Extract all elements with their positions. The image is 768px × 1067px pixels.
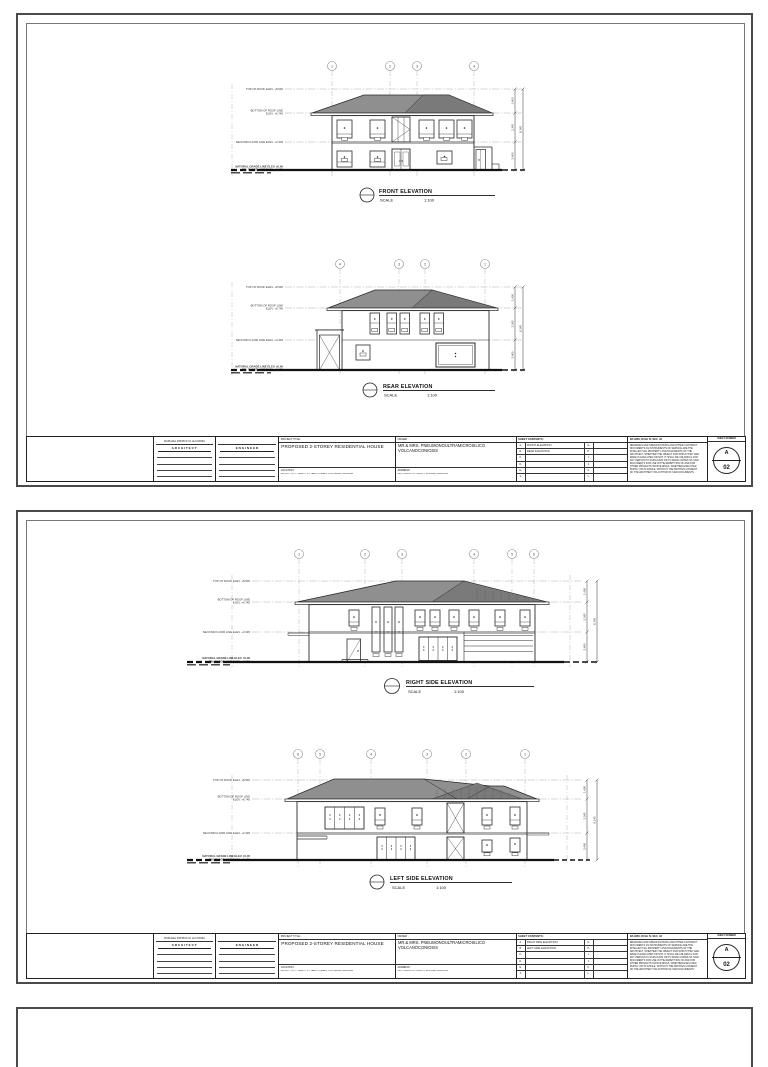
- owner-name: MR.& MRS. PNEUMONOULTRAMICROSILICO VOLCA…: [396, 940, 516, 951]
- address-value: 140 TUAZON ST. IGULOT, BOCAUE, BULACAN: [396, 970, 516, 974]
- contents-entry: LEFT SIDE ELEVATION: [526, 946, 585, 951]
- dimension-labels: 1,400 3,345 3,400 8,145: [511, 97, 523, 159]
- dim-label: 8,145: [593, 618, 597, 625]
- level-label: ELEV. +6.745: [266, 307, 284, 311]
- level-label: ELEV. +6.745: [233, 798, 251, 802]
- view-title: RIGHT SIDE ELEVATION SCALE 1:100: [385, 679, 535, 694]
- sheet-series: A: [714, 450, 739, 456]
- porch-slab: [288, 633, 309, 635]
- grid-bubble-label: 4: [339, 262, 341, 266]
- signature-line: [157, 967, 213, 968]
- engineer-name: [218, 937, 276, 942]
- grid-bubble-label: 2: [389, 64, 391, 68]
- revision-block: [27, 437, 154, 481]
- level-label: TOP OF ROOF ELEV. +8.545: [246, 285, 283, 289]
- dim-label: 3,400: [511, 351, 515, 358]
- dim-label: 8,145: [593, 816, 597, 823]
- sheet-number-label: SHEET NUMBER: [708, 934, 745, 939]
- grid-bubble-label: 1: [331, 64, 333, 68]
- contents-letter: L.: [585, 971, 594, 977]
- level-label: SECOND FLOOR LINE ELEV. +3.345: [236, 140, 284, 144]
- grid-bubble-labels: 4 3 2 1: [339, 262, 486, 266]
- title-block: RAPHAEL PATRICK M. ALCORIZA ARCHITECT EN…: [26, 436, 746, 482]
- grid-bubble-label: 4: [473, 64, 475, 68]
- engineer-name: [218, 440, 276, 445]
- contents-entry: [594, 455, 628, 460]
- dimension-labels: 1,400 3,345 3,400 8,145: [583, 588, 597, 651]
- sheet-series: A: [714, 947, 739, 953]
- contents-entry: [594, 959, 628, 964]
- sheet-number-circle: A 02: [713, 944, 740, 971]
- contents-letter: C.: [517, 952, 526, 957]
- engineer-label: ENGINEER: [220, 446, 274, 452]
- grid-bubble-label: 3: [416, 64, 418, 68]
- signature-line: [157, 476, 213, 477]
- house-front: [311, 95, 499, 170]
- grid-bubble-label: 1: [298, 552, 300, 556]
- dim-label: 3,400: [583, 643, 587, 650]
- location-value: BLOCK 7 LOT 7 EARTH ST. NEPO HOMES, STA.…: [279, 970, 395, 974]
- level-label: ELEV. +6.745: [266, 112, 284, 116]
- grid-bubble-label: 3: [401, 552, 403, 556]
- notes-block: RA 9266, RULE IV, SEC. 33 DRAWINGS AND S…: [628, 437, 708, 481]
- contents-letter: L.: [585, 474, 594, 480]
- notes-body: DRAWINGS AND SPECIFICATIONS AND OTHER CO…: [628, 940, 707, 971]
- level-label: TOP OF ROOF ELEV. +8.545: [213, 579, 250, 583]
- architect-name: RAPHAEL PATRICK M. ALCORIZA: [156, 937, 214, 942]
- signature-line: [219, 973, 275, 974]
- sheet-number-divider: [712, 460, 741, 461]
- address-value: 140 TUAZON ST. IGULOT, BOCAUE, BULACAN: [396, 473, 516, 477]
- contents-letter: B.: [517, 946, 526, 951]
- address-block: ADDRESS : 140 TUAZON ST. IGULOT, BOCAUE,…: [396, 467, 516, 481]
- rear-elevation-drawing: 4 3 2 1 TOP OF ROOF ELEV. +8.545 BOTTOM …: [227, 255, 557, 407]
- engineer-label: ENGINEER: [220, 943, 274, 949]
- grid-bubbles: [328, 62, 479, 71]
- architect-label: ARCHITECT: [158, 446, 212, 452]
- project-title: PROPOSED 2-STOREY RESIDENTIAL HOUSE: [279, 940, 395, 947]
- view-title-label: REAR ELEVATION: [383, 384, 433, 390]
- signature-line: [157, 954, 213, 955]
- notes-block: RA 9266, RULE IV, SEC. 33 DRAWINGS AND S…: [628, 934, 708, 978]
- architect-label: ARCHITECT: [158, 943, 212, 949]
- project-block: PROJECT TITLE : PROPOSED 2-STOREY RESIDE…: [279, 437, 396, 481]
- level-label: ELEV. +6.745: [233, 601, 251, 605]
- grid-bubble-labels: 1 2 3 4 5 6: [298, 552, 535, 556]
- contents-entry: [594, 965, 628, 970]
- dimension-labels: 1,400 3,345 3,400 8,145: [583, 786, 597, 850]
- signature-line: [157, 464, 213, 465]
- sheet-contents-block: SHEET CONTENTS : A. RIGHT SIDE ELEVATION…: [517, 934, 629, 978]
- view-scale-label: SCALE: [392, 885, 405, 890]
- engineer-block: ENGINEER: [216, 437, 279, 481]
- grid-bubble-label: 3: [398, 262, 400, 266]
- drawing-sheet-2: 1 2 3 4 5 6 TOP OF ROOF ELEV. +8.545 BOT…: [16, 510, 753, 984]
- dim-label: 3,345: [583, 613, 587, 620]
- sheet-number-block: SHEET NUMBER A 02: [708, 934, 745, 978]
- signature-line: [157, 973, 213, 974]
- sheet-number-label: SHEET NUMBER: [708, 437, 745, 442]
- contents-entry: RIGHT SIDE ELEVATION: [526, 940, 585, 945]
- contents-entry: [594, 940, 628, 945]
- house-right-side: [288, 581, 549, 662]
- view-scale-label: SCALE: [380, 198, 393, 203]
- view-title-label: LEFT SIDE ELEVATION: [390, 876, 453, 882]
- contents-letter: J.: [585, 959, 594, 964]
- contents-entry: FRONT ELEVATION: [526, 443, 585, 448]
- signature-line: [219, 470, 275, 471]
- contents-letter: H.: [585, 946, 594, 951]
- contents-letter: D.: [517, 959, 526, 964]
- view-title-label: FRONT ELEVATION: [379, 189, 432, 195]
- contents-letter: H.: [585, 449, 594, 454]
- grid-bubble-label: 2: [424, 262, 426, 266]
- grid-bubbles: [336, 260, 490, 269]
- contents-entry: [526, 959, 585, 964]
- contents-entry: [594, 462, 628, 467]
- contents-entry: [526, 468, 585, 473]
- contents-letter: J.: [585, 462, 594, 467]
- revision-block: [27, 934, 154, 978]
- view-title: LEFT SIDE ELEVATION SCALE 1:100: [370, 875, 512, 890]
- level-label: SECOND FLOOR LINE ELEV. +3.345: [236, 338, 284, 342]
- owner-block: OWNER : MR.& MRS. PNEUMONOULTRAMICROSILI…: [396, 934, 517, 978]
- contents-entry: [594, 443, 628, 448]
- contents-letter: A.: [517, 940, 526, 945]
- contents-row: F. L.: [517, 474, 628, 480]
- address-block: ADDRESS : 140 TUAZON ST. IGULOT, BOCAUE,…: [396, 964, 516, 978]
- house-left-side: [285, 779, 549, 860]
- level-annotations: TOP OF ROOF ELEV. +8.545 BOTTOM OF ROOF …: [235, 285, 283, 372]
- grid-bubble-label: 1: [484, 262, 486, 266]
- front-elevation-drawing: 1 2 3 4 TOP OF ROOF ELEV. +8.545 BOTTOM …: [227, 58, 557, 208]
- contents-letter: I.: [585, 952, 594, 957]
- dim-label: 3,345: [583, 812, 587, 819]
- signature-line: [219, 961, 275, 962]
- contents-letter: A.: [517, 443, 526, 448]
- contents-entry: [526, 474, 585, 480]
- dim-label: 3,400: [511, 152, 515, 159]
- contents-letter: K.: [585, 965, 594, 970]
- contents-letter: I.: [585, 455, 594, 460]
- grid-bubble-label: 1: [524, 752, 526, 756]
- grid-bubble-label: 4: [370, 752, 372, 756]
- rear-annex: [315, 330, 344, 370]
- grid-bubble-label: 6: [533, 552, 535, 556]
- side-annex: [474, 147, 499, 170]
- contents-row: F. L.: [517, 971, 628, 977]
- contents-letter: C.: [517, 455, 526, 460]
- level-label: TOP OF ROOF ELEV. +8.545: [246, 87, 283, 91]
- project-block: PROJECT TITLE : PROPOSED 2-STOREY RESIDE…: [279, 934, 396, 978]
- contents-entry: [526, 455, 585, 460]
- contents-entry: REAR ELEVATION: [526, 449, 585, 454]
- contents-letter: K.: [585, 468, 594, 473]
- view-scale-label: SCALE: [384, 393, 397, 398]
- signature-line: [157, 961, 213, 962]
- signature-line: [219, 954, 275, 955]
- signature-line: [219, 476, 275, 477]
- location-block: LOCATION : BLOCK 7 LOT 7 EARTH ST. NEPO …: [279, 964, 395, 978]
- sheet-number: 02: [714, 465, 739, 471]
- architect-block: RAPHAEL PATRICK M. ALCORIZA ARCHITECT: [154, 437, 217, 481]
- owner-block: OWNER : MR.& MRS. PNEUMONOULTRAMICROSILI…: [396, 437, 517, 481]
- house-rear: [315, 290, 498, 370]
- view-title-label: RIGHT SIDE ELEVATION: [406, 680, 472, 686]
- owner-name: MR.& MRS. PNEUMONOULTRAMICROSILICO VOLCA…: [396, 443, 516, 454]
- grid-bubble-label: 3: [426, 752, 428, 756]
- dim-label: 3,345: [511, 320, 515, 327]
- dim-label: 3,400: [583, 843, 587, 850]
- signature-line: [157, 470, 213, 471]
- grid-bubble-label: 2: [465, 752, 467, 756]
- project-title: PROPOSED 2-STOREY RESIDENTIAL HOUSE: [279, 443, 395, 450]
- architect-block: RAPHAEL PATRICK M. ALCORIZA ARCHITECT: [154, 934, 217, 978]
- contents-letter: F.: [517, 971, 526, 977]
- contents-entry: [594, 468, 628, 473]
- sheet-number-block: SHEET NUMBER A 02: [708, 437, 745, 481]
- left-side-elevation-drawing: 6 5 4 3 2 1 TOP OF ROOF ELEV. +8.545 BOT…: [182, 745, 612, 905]
- view-title: REAR ELEVATION SCALE 1:100: [363, 383, 495, 398]
- level-annotations: TOP OF ROOF ELEV. +8.545 BOTTOM OF ROOF …: [202, 579, 250, 663]
- contents-entry: [526, 952, 585, 957]
- sheet-number: 02: [714, 962, 739, 968]
- contents-entry: [526, 462, 585, 467]
- engineer-block: ENGINEER: [216, 934, 279, 978]
- contents-letter: G.: [585, 443, 594, 448]
- notes-body: DRAWINGS AND SPECIFICATIONS AND OTHER CO…: [628, 443, 707, 474]
- view-scale-value: 1:100: [427, 393, 438, 398]
- canopy-slab: [527, 833, 549, 835]
- view-scale-value: 1:100: [436, 885, 447, 890]
- grid-bubble-label: 4: [473, 552, 475, 556]
- dimension-labels: 1,400 3,345 3,400 8,145: [511, 294, 523, 359]
- dim-label: 1,400: [583, 786, 587, 793]
- contents-letter: B.: [517, 449, 526, 454]
- level-label: TOP OF ROOF ELEV. +8.545: [213, 778, 250, 782]
- grid-bubble-label: 6: [297, 752, 299, 756]
- level-label: SECOND FLOOR LINE ELEV. +3.345: [203, 630, 251, 634]
- grid-bubbles: [294, 750, 530, 759]
- grid-bubbles: [295, 550, 539, 559]
- contents-letter: E.: [517, 965, 526, 970]
- view-scale-value: 1:100: [454, 689, 465, 694]
- view-scale-value: 1:100: [424, 198, 435, 203]
- contents-letter: G.: [585, 940, 594, 945]
- contents-entry: [594, 449, 628, 454]
- grid-bubble-label: 2: [364, 552, 366, 556]
- view-scale-label: SCALE: [408, 689, 421, 694]
- right-side-elevation-drawing: 1 2 3 4 5 6 TOP OF ROOF ELEV. +8.545 BOT…: [182, 547, 612, 705]
- notes-line: OF THE ARCHITECT OR AUTHOR OF SAID DOCUM…: [630, 471, 706, 474]
- signature-line: [219, 967, 275, 968]
- dim-label: 8,145: [519, 126, 523, 133]
- architect-name: RAPHAEL PATRICK M. ALCORIZA: [156, 440, 214, 445]
- sheet-number-circle: A 02: [713, 447, 740, 474]
- title-block: RAPHAEL PATRICK M. ALCORIZA ARCHITECT EN…: [26, 933, 746, 979]
- dim-label: 3,345: [511, 124, 515, 131]
- grid-bubble-labels: 1 2 3 4: [331, 64, 475, 68]
- signature-line: [219, 457, 275, 458]
- dim-label: 1,400: [511, 97, 515, 104]
- sheet-number-divider: [712, 957, 741, 958]
- location-value: BLOCK 7 LOT 7 EARTH ST. NEPO HOMES, STA.…: [279, 473, 395, 477]
- signature-line: [219, 464, 275, 465]
- contents-entry: [594, 971, 628, 977]
- contents-entry: [594, 946, 628, 951]
- dim-label: 1,400: [583, 588, 587, 595]
- dim-label: 8,145: [519, 325, 523, 332]
- drawing-sheet-3: [16, 1007, 753, 1067]
- contents-entry: [594, 952, 628, 957]
- contents-letter: E.: [517, 468, 526, 473]
- level-annotations: TOP OF ROOF ELEV. +8.545 BOTTOM OF ROOF …: [202, 778, 250, 861]
- sheet-contents-block: SHEET CONTENTS : A. FRONT ELEVATION G. B…: [517, 437, 629, 481]
- signature-line: [157, 457, 213, 458]
- drawing-sheet-1: 1 2 3 4 TOP OF ROOF ELEV. +8.545 BOTTOM …: [16, 13, 753, 487]
- contents-letter: F.: [517, 474, 526, 480]
- contents-entry: [594, 474, 628, 480]
- grid-bubble-label: 5: [511, 552, 513, 556]
- contents-entry: [526, 965, 585, 970]
- view-title: FRONT ELEVATION SCALE 1:100: [360, 188, 495, 203]
- level-annotations: TOP OF ROOF ELEV. +8.545 BOTTOM OF ROOF …: [235, 87, 283, 172]
- contents-letter: D.: [517, 462, 526, 467]
- location-block: LOCATION : BLOCK 7 LOT 7 EARTH ST. NEPO …: [279, 467, 395, 481]
- contents-entry: [526, 971, 585, 977]
- grid-bubble-labels: 6 5 4 3 2 1: [297, 752, 526, 756]
- level-label: SECOND FLOOR LINE ELEV. +3.345: [203, 831, 251, 835]
- notes-line: OF THE ARCHITECT OR AUTHOR OF SAID DOCUM…: [630, 968, 706, 971]
- dim-label: 1,400: [511, 294, 515, 301]
- grid-bubble-label: 5: [319, 752, 321, 756]
